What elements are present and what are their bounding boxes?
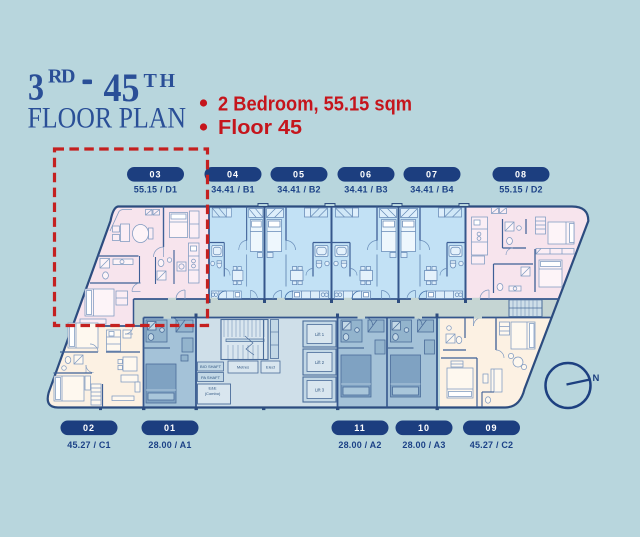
svg-text:34.41 / B3: 34.41 / B3 <box>344 185 388 195</box>
svg-text:07: 07 <box>426 170 438 180</box>
svg-text:RD: RD <box>48 66 76 88</box>
svg-text:Metres: Metres <box>237 365 249 370</box>
svg-text:55.15 / D1: 55.15 / D1 <box>134 185 178 195</box>
svg-text:28.00 / A1: 28.00 / A1 <box>148 440 191 450</box>
svg-text:05: 05 <box>293 170 305 180</box>
svg-text:FLOOR PLAN: FLOOR PLAN <box>28 102 187 134</box>
svg-text:06: 06 <box>360 170 372 180</box>
svg-text:04: 04 <box>227 170 239 180</box>
svg-text:03: 03 <box>149 170 161 180</box>
svg-text:Floor 45: Floor 45 <box>218 117 302 139</box>
svg-text:45.27 / C2: 45.27 / C2 <box>470 440 514 450</box>
svg-text:28.00 / A3: 28.00 / A3 <box>402 440 445 450</box>
svg-text:TH: TH <box>144 70 176 92</box>
svg-text:10: 10 <box>418 423 430 433</box>
svg-text:02: 02 <box>83 423 95 433</box>
svg-text:BIO SHAFT: BIO SHAFT <box>200 364 222 369</box>
svg-text:(Combo): (Combo) <box>205 391 221 396</box>
svg-text:34.41 / B4: 34.41 / B4 <box>410 185 454 195</box>
svg-text:Elect: Elect <box>266 365 276 370</box>
svg-text:01: 01 <box>164 423 176 433</box>
svg-text:Lift 1: Lift 1 <box>315 332 325 337</box>
svg-text:28.00 / A2: 28.00 / A2 <box>338 440 381 450</box>
svg-text:2 Bedroom, 55.15 sqm: 2 Bedroom, 55.15 sqm <box>218 94 412 116</box>
svg-text:E&E: E&E <box>208 386 216 391</box>
svg-text:08: 08 <box>515 170 527 180</box>
svg-text:34.41 / B1: 34.41 / B1 <box>211 185 255 195</box>
svg-text:45.27 / C1: 45.27 / C1 <box>67 440 111 450</box>
svg-text:Lift 3: Lift 3 <box>315 388 325 393</box>
svg-text:11: 11 <box>354 423 366 433</box>
svg-text:N: N <box>593 373 600 384</box>
svg-text:09: 09 <box>485 423 497 433</box>
svg-text:PA SHAFT: PA SHAFT <box>201 375 221 380</box>
svg-text:55.15 / D2: 55.15 / D2 <box>499 185 543 195</box>
svg-text:Lift 2: Lift 2 <box>315 360 325 365</box>
svg-text:34.41 / B2: 34.41 / B2 <box>277 185 321 195</box>
